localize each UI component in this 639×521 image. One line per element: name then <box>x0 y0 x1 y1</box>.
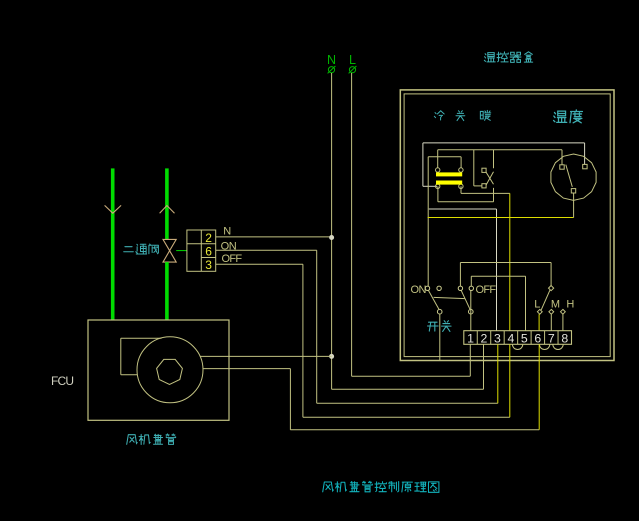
svg-text:OFF: OFF <box>476 284 497 296</box>
svg-text:7: 7 <box>548 331 555 345</box>
svg-text:N: N <box>327 53 336 67</box>
svg-text:6: 6 <box>205 245 212 259</box>
svg-text:FCU: FCU <box>51 374 73 388</box>
svg-text:N: N <box>223 225 231 237</box>
svg-text:3: 3 <box>205 258 212 272</box>
svg-text:5: 5 <box>521 331 528 345</box>
svg-text:H: H <box>566 298 574 310</box>
svg-text:OFF: OFF <box>222 253 243 265</box>
svg-text:M: M <box>551 298 560 310</box>
svg-text:1: 1 <box>467 331 474 345</box>
svg-text:8: 8 <box>561 331 568 345</box>
svg-text:2: 2 <box>205 231 212 245</box>
svg-text:ON: ON <box>410 284 426 296</box>
svg-text:3: 3 <box>494 331 501 345</box>
svg-text:4: 4 <box>507 331 514 345</box>
svg-text:6: 6 <box>534 331 541 345</box>
svg-text:L: L <box>534 298 540 310</box>
svg-text:L: L <box>349 53 356 67</box>
svg-text:2: 2 <box>481 331 488 345</box>
